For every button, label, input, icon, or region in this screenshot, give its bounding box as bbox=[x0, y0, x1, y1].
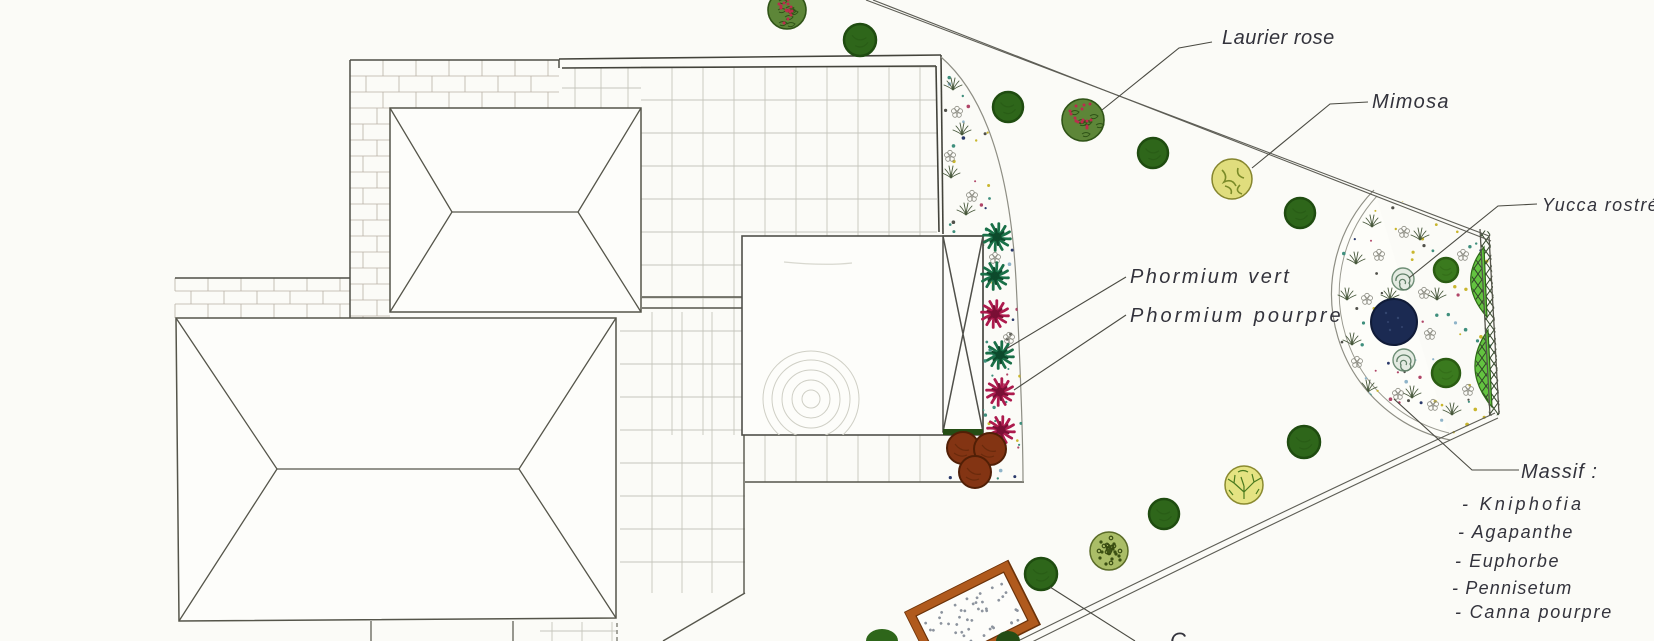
svg-text:Phormium vert: Phormium vert bbox=[1130, 266, 1291, 288]
svg-text:- Kniphofia: - Kniphofia bbox=[1462, 494, 1584, 514]
svg-text:- Pennisetum: - Pennisetum bbox=[1452, 578, 1572, 598]
svg-text:Yucca rostré: Yucca rostré bbox=[1542, 195, 1654, 215]
svg-text:Laurier rose: Laurier rose bbox=[1222, 27, 1335, 49]
svg-text:- Euphorbe: - Euphorbe bbox=[1455, 551, 1560, 571]
svg-text:- Agapanthe: - Agapanthe bbox=[1458, 522, 1574, 542]
svg-text:- Canna pourpre: - Canna pourpre bbox=[1455, 602, 1613, 622]
svg-text:C: C bbox=[1170, 628, 1186, 641]
svg-text:Massif :: Massif : bbox=[1521, 461, 1598, 483]
svg-text:Mimosa: Mimosa bbox=[1372, 91, 1450, 113]
svg-text:Phormium pourpre: Phormium pourpre bbox=[1130, 305, 1344, 327]
